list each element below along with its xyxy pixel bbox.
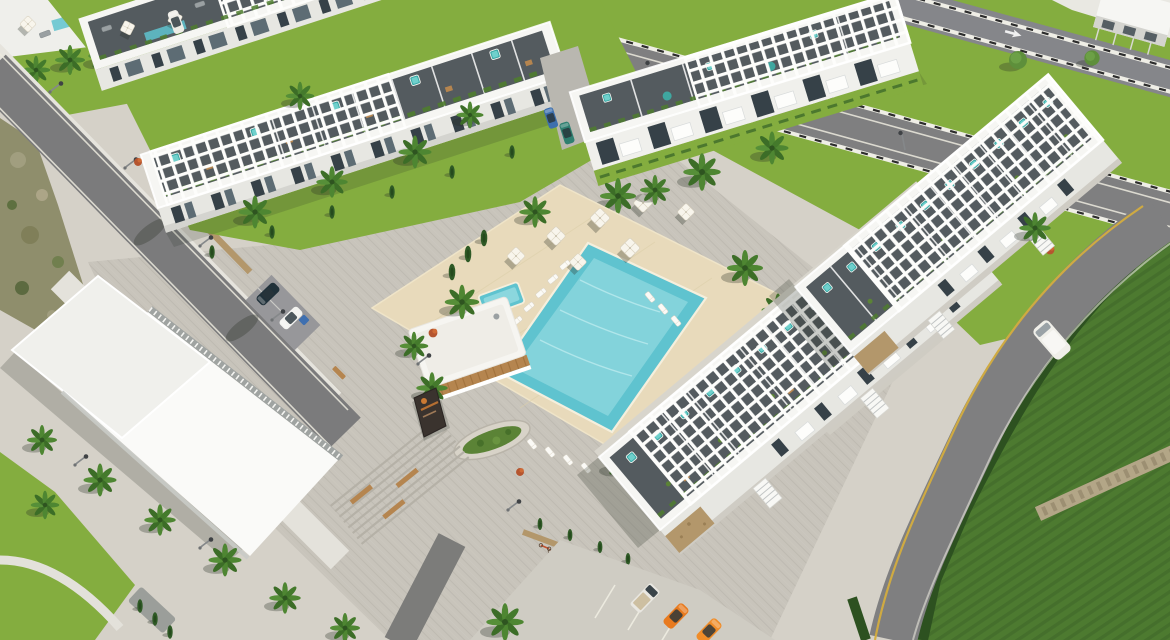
- flowering-bush: [429, 329, 438, 338]
- rooftop-jacuzzi: [602, 93, 612, 103]
- sign-emblem: [421, 398, 427, 404]
- flowering-bush: [134, 158, 142, 166]
- flowering-bush: [516, 468, 524, 476]
- aerial-render: [0, 0, 1170, 640]
- rendering-canvas: [0, 0, 1170, 640]
